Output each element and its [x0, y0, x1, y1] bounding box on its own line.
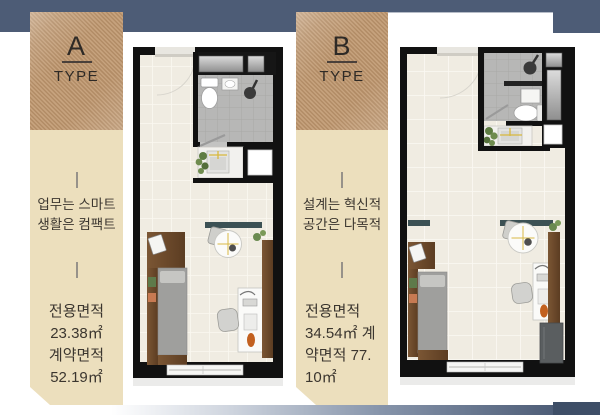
type-a-area-info: 전용면적 23.38㎡ 계약면적 52.19㎡	[49, 301, 104, 389]
divider-tick	[341, 262, 343, 278]
tagline-line: 공간은 다목적	[303, 215, 381, 235]
divider-tick	[76, 172, 78, 188]
shower-partition	[504, 81, 542, 86]
balcony-window	[447, 362, 523, 372]
plan-a-ground-shadow	[133, 378, 283, 386]
type-b-area-info: 전용면적 34.54㎡ 계 약면적 77. 10㎡	[296, 301, 376, 389]
type-a-description: 업무는 스마트 생활은 컴팩트 전용면적 23.38㎡ 계약면적 52.19㎡	[30, 130, 123, 405]
closet	[542, 47, 575, 148]
tagline-line: 생활은 컴팩트	[37, 215, 115, 235]
balcony-window	[167, 365, 243, 375]
refrigerator	[248, 150, 272, 175]
area-line: 23.38㎡	[49, 323, 104, 345]
type-a-tagline: 업무는 스마트 생활은 컴팩트	[37, 195, 115, 235]
area-line: 52.19㎡	[49, 367, 104, 389]
desk-chair	[217, 308, 240, 333]
area-line: 10㎡	[305, 367, 376, 389]
wardrobe	[548, 220, 561, 327]
type-panel-b: B TYPE 설계는 혁신적 공간은 다목적 전용면적 34.54㎡ 계 약면적…	[296, 12, 388, 405]
brochure-page: A TYPE 업무는 스마트 생활은 컴팩트 전용면적 23.38㎡ 계약면적 …	[0, 0, 600, 415]
floor-plan-a	[133, 47, 283, 378]
type-a-header: A TYPE	[30, 12, 123, 130]
bathroom-sink	[521, 89, 540, 103]
floor-plan-a-drawing	[133, 47, 283, 378]
type-panel-a: A TYPE 업무는 스마트 생활은 컴팩트 전용면적 23.38㎡ 계약면적 …	[30, 12, 123, 405]
type-b-letter: B	[296, 12, 388, 60]
toilet	[514, 105, 538, 121]
floor-plan-b-drawing	[400, 47, 575, 377]
type-b-tagline: 설계는 혁신적 공간은 다목적	[303, 195, 381, 235]
type-b-description: 설계는 혁신적 공간은 다목적 전용면적 34.54㎡ 계 약면적 77. 10…	[296, 130, 388, 405]
wall-shelf	[408, 220, 430, 226]
type-a-letter: A	[30, 12, 123, 60]
divider-tick	[341, 172, 343, 188]
pillow	[160, 271, 185, 283]
bathroom	[478, 47, 550, 126]
refrigerator	[544, 125, 562, 144]
type-a-underline	[62, 61, 92, 63]
area-line: 약면적 77.	[305, 345, 376, 367]
bed	[147, 232, 187, 365]
type-b-header: B TYPE	[296, 12, 388, 130]
pillow	[420, 275, 445, 287]
kitchenette	[193, 147, 276, 183]
type-b-label: TYPE	[296, 68, 388, 85]
type-b-underline	[327, 61, 357, 63]
area-line: 전용면적	[49, 301, 104, 323]
area-line: 전용면적	[305, 301, 376, 323]
footer-gradient-bar	[0, 405, 556, 415]
footer-corner-block	[553, 402, 600, 415]
tagline-line: 업무는 스마트	[37, 195, 115, 215]
type-a-label: TYPE	[30, 68, 123, 85]
desk-chair	[511, 282, 534, 305]
divider-tick	[76, 262, 78, 278]
tagline-line: 설계는 혁신적	[303, 195, 381, 215]
area-line: 34.54㎡ 계	[305, 323, 376, 345]
toilet	[201, 78, 218, 87]
header-corner-block	[553, 0, 600, 33]
closet	[193, 52, 276, 75]
plan-b-ground-shadow	[400, 377, 575, 385]
area-line: 계약면적	[49, 345, 104, 367]
floor-plan-b	[400, 47, 575, 377]
